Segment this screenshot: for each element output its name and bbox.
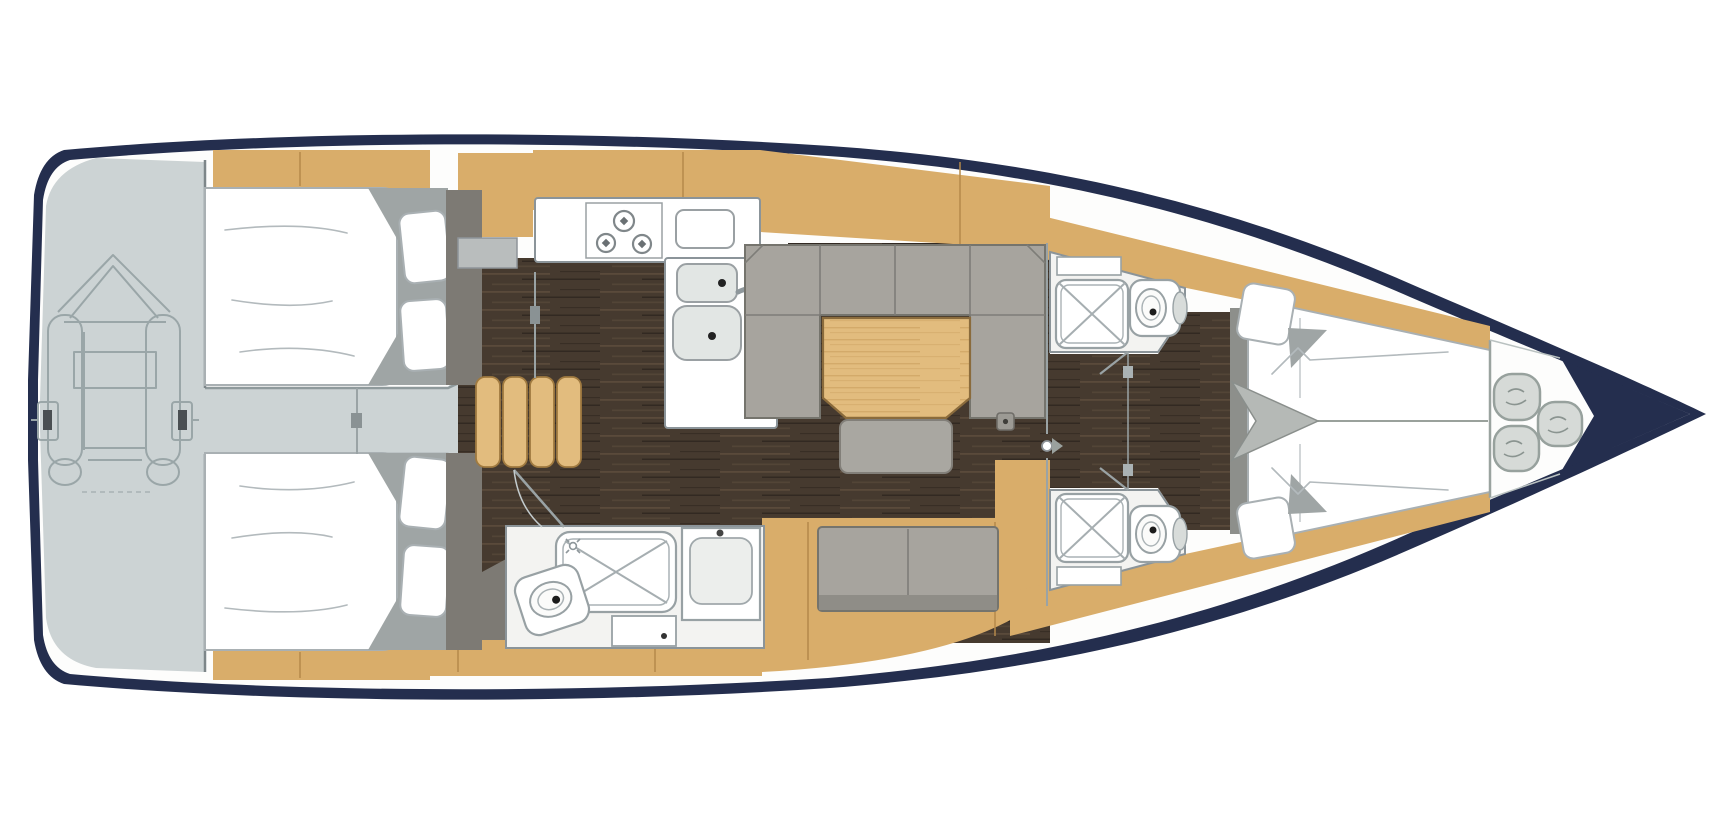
door-hinge [530, 306, 540, 324]
aft-port-shelf [213, 150, 430, 188]
yacht-floor-plan [0, 0, 1718, 838]
pillow [1236, 282, 1297, 346]
icebox-lid [676, 210, 734, 248]
two-seat-sofa [818, 527, 998, 611]
yacht-floor-plan-page [0, 0, 1718, 838]
double-berth-mattress [205, 453, 397, 650]
sink-basin-large [673, 306, 741, 360]
aft-cabin-port [205, 188, 482, 385]
rope-coil [1494, 374, 1540, 420]
sink-drain [708, 332, 716, 340]
galley-locker-shelf [458, 238, 517, 268]
door-hinge [1123, 366, 1133, 378]
wardrobe [446, 453, 482, 650]
toilet-drain [1150, 527, 1157, 534]
step-tread [476, 377, 500, 467]
vanity-drawer [612, 616, 676, 646]
vanity-shelf [1057, 257, 1121, 275]
marine-toilet [1130, 506, 1187, 562]
sofa-front-edge [819, 595, 997, 610]
pillow [398, 210, 451, 284]
double-berth-mattress [205, 188, 397, 385]
basin-faucet [717, 530, 724, 537]
ottoman-bench [840, 420, 952, 473]
sink-drain [718, 279, 726, 287]
toilet-tank [1173, 518, 1187, 550]
washbasin [682, 528, 760, 620]
pillow [400, 298, 451, 371]
berth-foot-board [1230, 308, 1248, 534]
mast-step-bolt [1003, 419, 1008, 424]
sink-basin-small [677, 264, 737, 302]
shower-tray [1056, 494, 1128, 562]
aft-cabin-starboard [205, 453, 508, 650]
pillow [398, 456, 451, 530]
step-tread [530, 377, 554, 467]
toilet-tank [1173, 292, 1187, 324]
rope-coil [1494, 426, 1539, 471]
vanity-shelf [1057, 567, 1121, 585]
pillow [400, 544, 451, 617]
toilet-drain [1150, 309, 1157, 316]
pillow [1236, 496, 1297, 560]
shower-tray [1056, 280, 1128, 348]
step-tread [557, 377, 581, 467]
wardrobe [446, 190, 482, 385]
door-hinge [1123, 464, 1133, 476]
locker-wedge [482, 558, 508, 640]
door-pivot [1042, 441, 1052, 451]
dinette-table [823, 318, 970, 418]
marine-toilet [1130, 280, 1187, 336]
mast-step [997, 413, 1014, 430]
rope-coil [1538, 402, 1582, 446]
door-hinge [351, 413, 362, 428]
drawer-knob [661, 633, 667, 639]
step-tread [503, 377, 527, 467]
